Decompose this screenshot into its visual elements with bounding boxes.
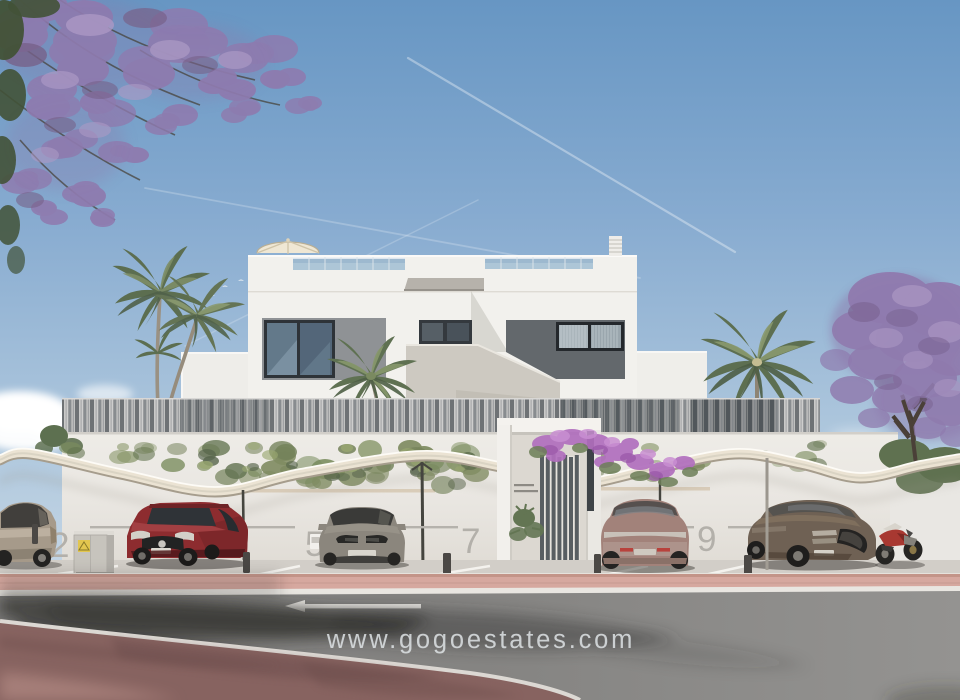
svg-text:7: 7	[461, 522, 480, 561]
svg-text:www.gogoestates.com: www.gogoestates.com	[326, 626, 635, 654]
svg-text:9: 9	[697, 520, 716, 559]
